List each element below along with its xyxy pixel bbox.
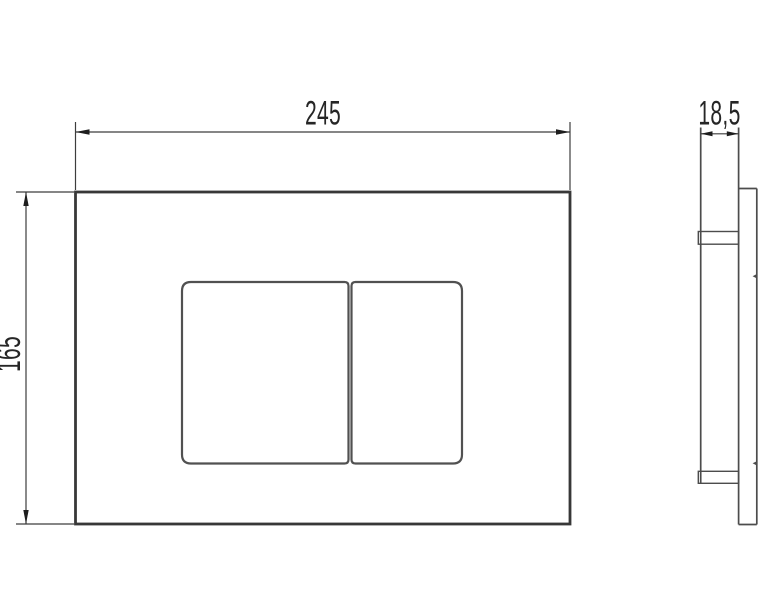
side-clip-tick-upper-icon <box>753 274 757 278</box>
width-arrow-left-icon <box>76 129 90 134</box>
large-flush-button <box>182 282 349 464</box>
height-dimension: 165 <box>0 192 74 524</box>
depth-dimension: 18,5 <box>698 93 740 136</box>
height-dimension-label: 165 <box>0 336 27 372</box>
width-dimension-lines <box>76 122 571 190</box>
technical-drawing-page: 245 165 <box>0 0 759 600</box>
technical-drawing-canvas: 245 165 <box>0 0 759 600</box>
small-flush-button <box>352 282 463 464</box>
side-clip-band-lower <box>698 471 738 483</box>
height-arrow-bottom-icon <box>23 510 28 524</box>
width-dimension: 245 <box>76 93 571 190</box>
height-arrow-top-icon <box>23 192 28 206</box>
front-view <box>76 192 571 524</box>
side-clip-tick-lower-icon <box>753 461 757 465</box>
width-dimension-label: 245 <box>305 93 341 131</box>
depth-dimension-label: 18,5 <box>698 93 740 131</box>
depth-arrow-left-icon <box>701 131 713 136</box>
side-view <box>698 128 757 525</box>
side-clip-band-upper <box>698 232 738 245</box>
width-arrow-right-icon <box>556 129 570 134</box>
depth-arrow-right-icon <box>727 131 739 136</box>
